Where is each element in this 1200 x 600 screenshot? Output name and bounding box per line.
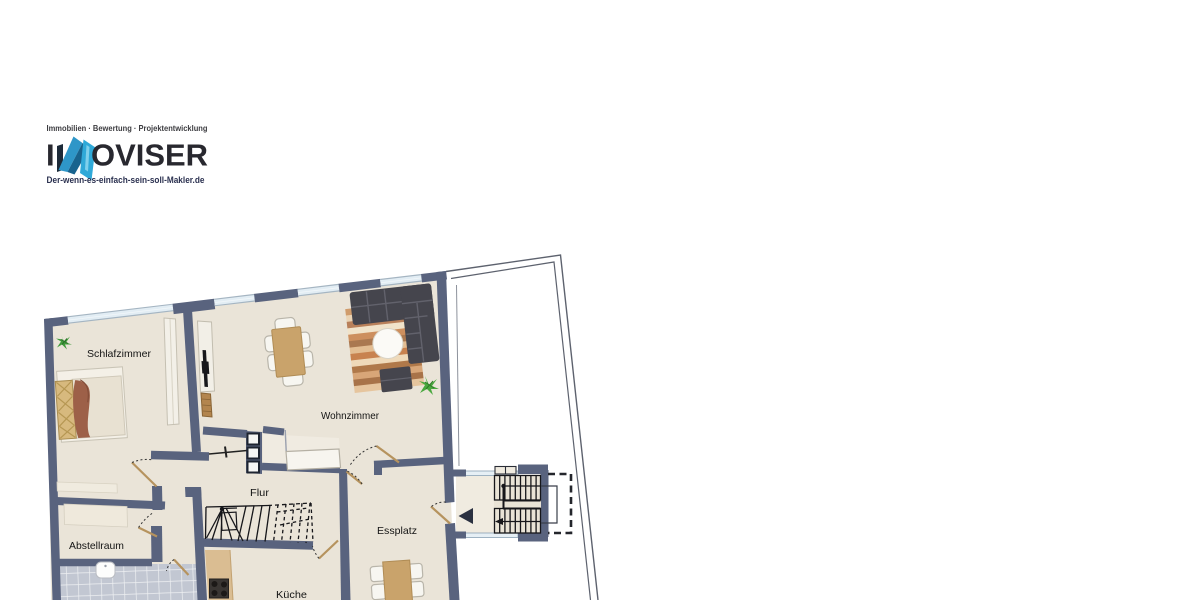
svg-text:Wohnzimmer: Wohnzimmer (321, 410, 379, 422)
svg-text:Flur: Flur (250, 487, 270, 499)
svg-text:OVISER: OVISER (91, 137, 208, 172)
svg-text:I: I (46, 137, 55, 172)
svg-text:Küche: Küche (276, 589, 307, 600)
svg-text:Der-wenn-es-einfach-sein-soll-: Der-wenn-es-einfach-sein-soll-Makler.de (47, 175, 205, 185)
svg-text:Schlafzimmer: Schlafzimmer (87, 348, 151, 360)
svg-text:Essplatz: Essplatz (377, 525, 417, 537)
svg-text:Immobilien · Bewertung · Proje: Immobilien · Bewertung · Projektentwickl… (47, 123, 208, 133)
svg-text:Abstellraum: Abstellraum (69, 540, 124, 552)
